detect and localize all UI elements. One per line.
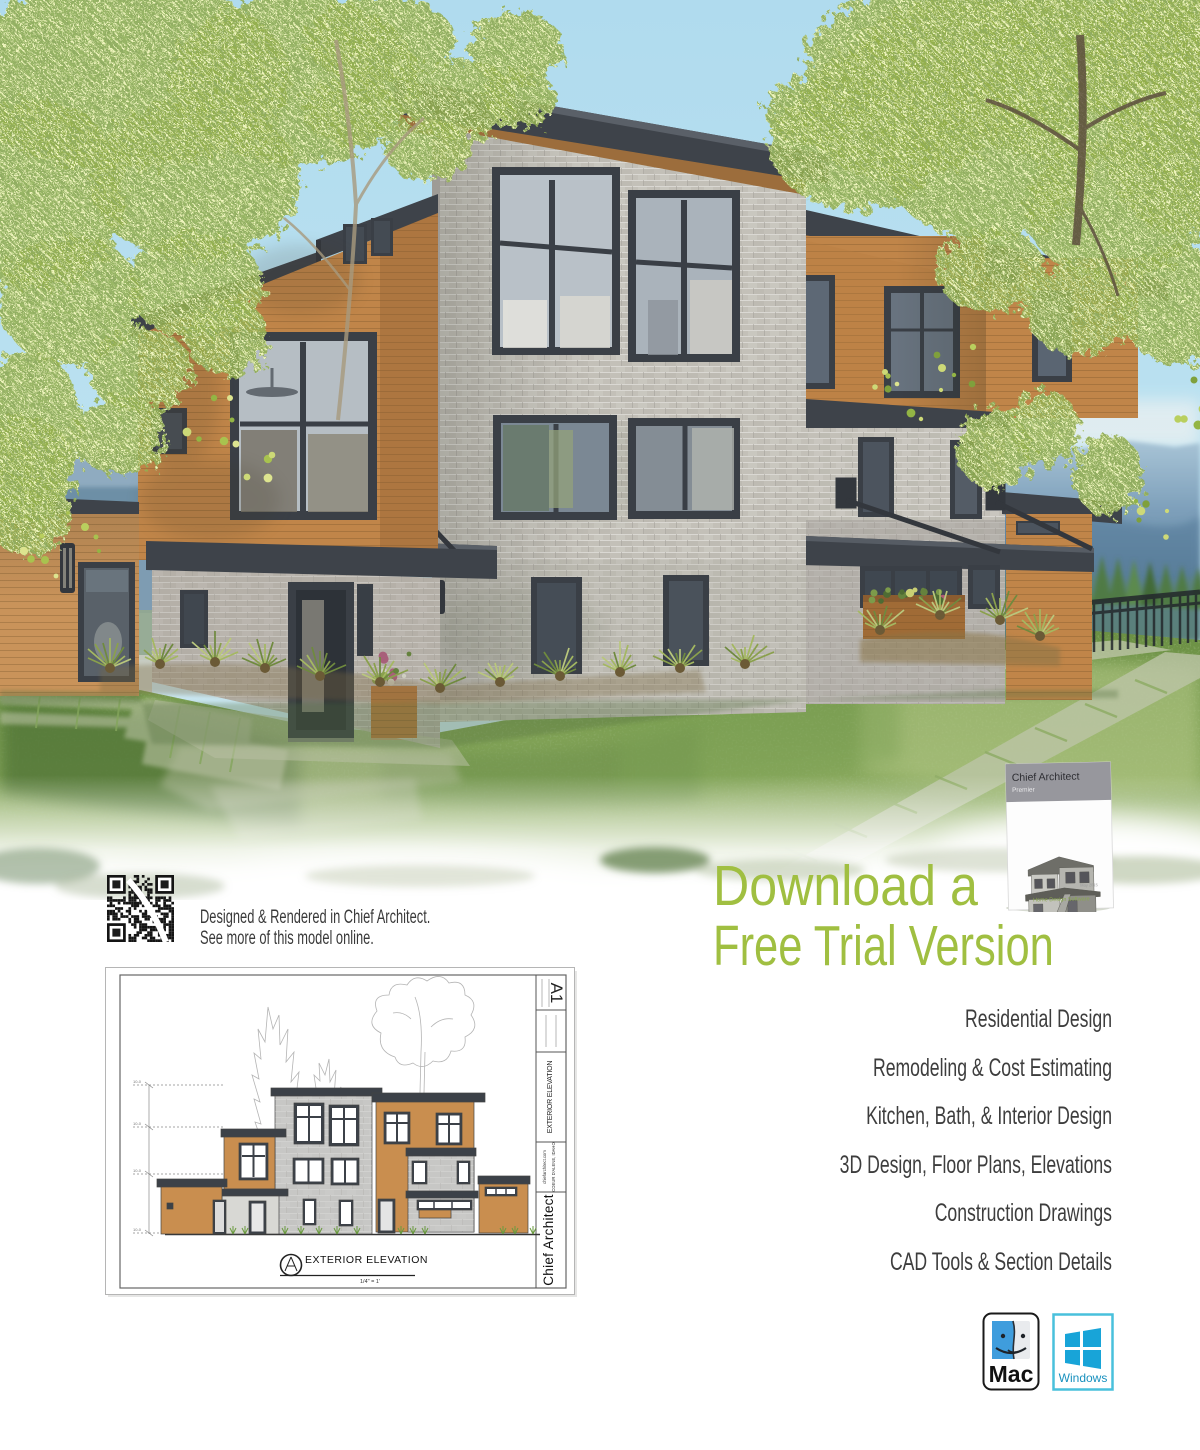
svg-text:Home Design Software: Home Design Software <box>1033 896 1090 903</box>
svg-text:Chief Architect: Chief Architect <box>1012 771 1080 784</box>
svg-text:EXTERIOR ELEVATION: EXTERIOR ELEVATION <box>547 1061 554 1134</box>
svg-text:Chief Architect: Chief Architect <box>541 1194 556 1286</box>
svg-text:A1: A1 <box>547 983 566 1004</box>
svg-text:10-0: 10-0 <box>133 1227 142 1232</box>
svg-text:10-0: 10-0 <box>133 1121 142 1126</box>
svg-text:10-0: 10-0 <box>133 1168 142 1173</box>
svg-text:10-0: 10-0 <box>133 1079 142 1084</box>
svg-text:May 2015: May 2015 <box>1080 882 1098 887</box>
svg-text:Mac: Mac <box>989 1361 1034 1387</box>
svg-text:Windows: Windows <box>1059 1371 1108 1385</box>
svg-text:1/4" = 1': 1/4" = 1' <box>360 1279 380 1285</box>
svg-text:Premier: Premier <box>1012 787 1036 794</box>
svg-text:chiefarchitect.com: chiefarchitect.com <box>542 1150 547 1184</box>
svg-text:COEUR D'ALENE, IDAHO: COEUR D'ALENE, IDAHO <box>551 1142 556 1192</box>
svg-text:EXTERIOR ELEVATION: EXTERIOR ELEVATION <box>305 1254 428 1266</box>
